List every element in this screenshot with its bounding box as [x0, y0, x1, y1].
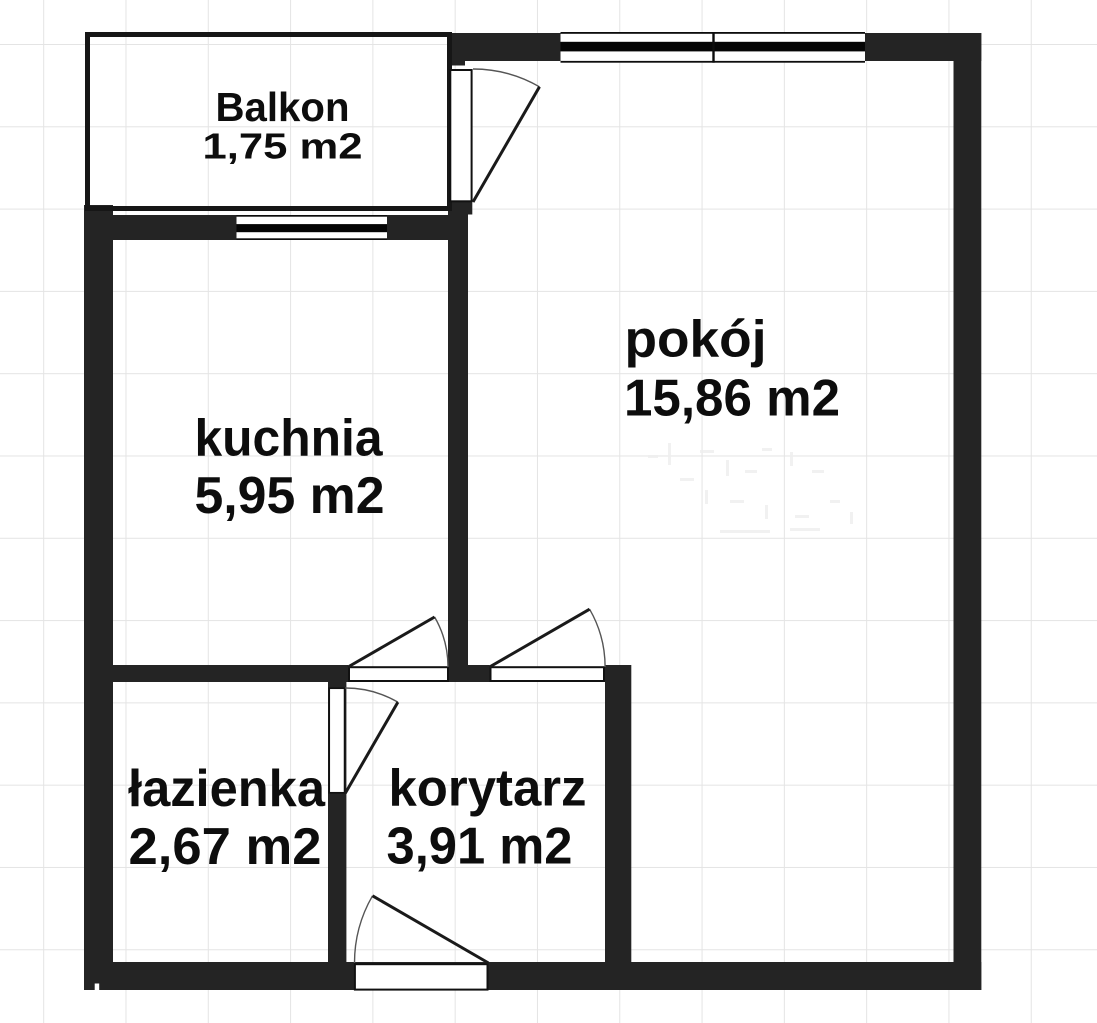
svg-text:kuchnia: kuchnia — [195, 410, 384, 468]
svg-text:2,67 m2: 2,67 m2 — [129, 818, 322, 876]
svg-text:15,86 m2: 15,86 m2 — [624, 369, 840, 427]
svg-text:pokój: pokój — [625, 311, 767, 369]
svg-text:1,75 m2: 1,75 m2 — [203, 126, 363, 167]
svg-text:łazienka: łazienka — [128, 760, 326, 818]
svg-text:Balkon: Balkon — [216, 84, 350, 130]
svg-text:5,95 m2: 5,95 m2 — [195, 467, 385, 525]
svg-text:korytarz: korytarz — [389, 760, 587, 818]
svg-text:3,91 m2: 3,91 m2 — [387, 818, 573, 876]
